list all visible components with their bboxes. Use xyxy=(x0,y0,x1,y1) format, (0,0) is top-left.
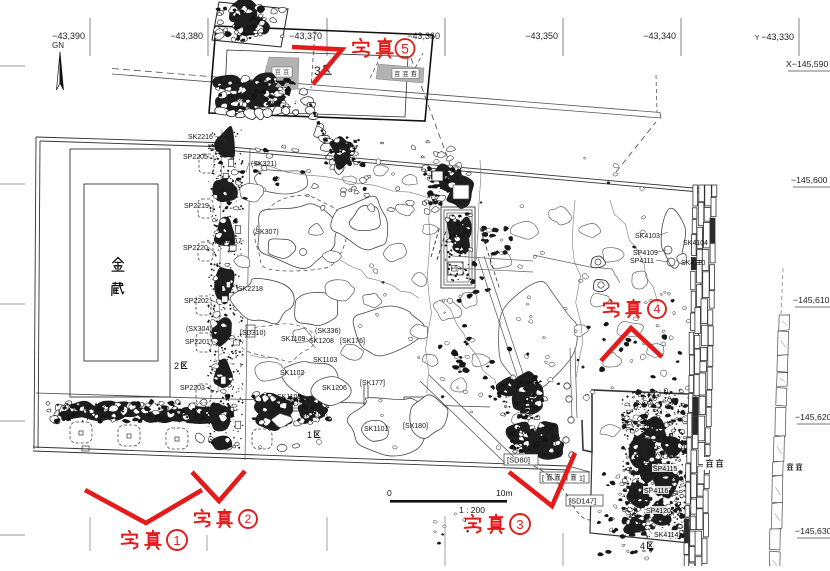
svg-text:(SX304): (SX304) xyxy=(186,326,212,333)
svg-text:2: 2 xyxy=(245,512,252,526)
svg-text:SP4115: SP4115 xyxy=(653,466,677,473)
svg-text:−43,380: −43,380 xyxy=(170,31,203,41)
svg-text:−145,600: −145,600 xyxy=(791,175,828,185)
svg-text:SP2220: SP2220 xyxy=(183,245,208,252)
svg-text:SK4103: SK4103 xyxy=(635,233,660,240)
svg-text:−145,630: −145,630 xyxy=(795,526,830,536)
svg-text:4: 4 xyxy=(654,302,661,316)
svg-text:(SK336): (SK336) xyxy=(315,328,341,335)
svg-text:Y −43,330: Y −43,330 xyxy=(755,32,794,42)
svg-text:SK4114: SK4114 xyxy=(654,532,678,539)
svg-text:SK1206: SK1206 xyxy=(322,385,347,392)
svg-text:GN: GN xyxy=(52,41,64,50)
svg-text:SK1102: SK1102 xyxy=(280,370,304,377)
svg-text:SK2216: SK2216 xyxy=(188,134,213,141)
svg-text:SP4111: SP4111 xyxy=(630,258,654,265)
svg-text:10m: 10m xyxy=(496,488,513,498)
svg-text:SK2217: SK2217 xyxy=(217,238,242,245)
svg-text:SP2205: SP2205 xyxy=(183,154,208,161)
svg-text:[SD80]: [SD80] xyxy=(507,456,530,465)
svg-text:[SD147]: [SD147] xyxy=(569,497,596,506)
svg-text:[SK176]: [SK176] xyxy=(340,338,365,345)
svg-text:SK1208: SK1208 xyxy=(309,338,334,345)
svg-text:SK1105: SK1105 xyxy=(277,394,301,401)
svg-text:[SX180]: [SX180] xyxy=(403,423,428,430)
svg-text:SK4104: SK4104 xyxy=(683,240,708,247)
svg-text:(SK307): (SK307) xyxy=(253,229,279,236)
svg-text:SK1104: SK1104 xyxy=(301,412,325,419)
svg-text:SK2218: SK2218 xyxy=(238,286,263,293)
svg-text:−145,610: −145,610 xyxy=(793,295,830,305)
svg-text:[SK177]: [SK177] xyxy=(360,380,385,387)
svg-text:SP2219: SP2219 xyxy=(184,203,209,210)
svg-text:1 : 200: 1 : 200 xyxy=(459,505,485,515)
svg-text:−43,340: −43,340 xyxy=(643,31,676,41)
svg-text:[: [ xyxy=(542,476,544,483)
svg-text:SP2201: SP2201 xyxy=(185,339,210,346)
svg-text:−43,350: −43,350 xyxy=(525,31,558,41)
svg-text:3: 3 xyxy=(516,517,523,532)
svg-text:1]: 1] xyxy=(579,476,585,483)
svg-text:SK1101: SK1101 xyxy=(364,426,388,433)
svg-text:1: 1 xyxy=(173,533,180,548)
svg-text:−43,360: −43,360 xyxy=(407,31,440,41)
svg-text:1: 1 xyxy=(307,430,312,440)
svg-text:SP2203: SP2203 xyxy=(180,385,205,392)
svg-text:−43,390: −43,390 xyxy=(52,31,85,41)
svg-text:−145,620: −145,620 xyxy=(795,412,830,422)
svg-text:SP4120: SP4120 xyxy=(646,508,671,515)
svg-text:0: 0 xyxy=(387,488,392,498)
svg-text:[SD310): [SD310) xyxy=(240,330,266,337)
svg-text:−43,370: −43,370 xyxy=(289,31,322,41)
svg-text:SP4109: SP4109 xyxy=(633,250,658,257)
svg-text:X−145,590: X−145,590 xyxy=(786,59,828,69)
svg-text:SK1109: SK1109 xyxy=(281,336,305,343)
svg-text:2: 2 xyxy=(174,361,179,371)
svg-text:(SK321): (SK321) xyxy=(251,161,277,168)
svg-text:4: 4 xyxy=(640,541,645,551)
svg-text:5: 5 xyxy=(401,41,409,57)
svg-text:SK1103: SK1103 xyxy=(313,357,337,364)
svg-text:SP2202: SP2202 xyxy=(184,298,209,305)
svg-text:SK4110: SK4110 xyxy=(681,260,705,267)
svg-text:SP4116: SP4116 xyxy=(644,488,668,495)
